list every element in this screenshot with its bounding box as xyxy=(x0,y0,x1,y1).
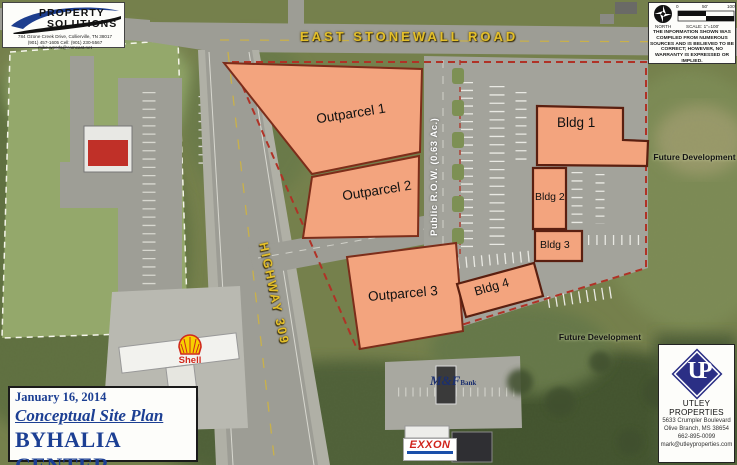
utley-email: mark@utleyproperties.com xyxy=(659,441,734,449)
public-row-label: Public R.O.W. (0.63 Ac.) xyxy=(429,92,444,262)
north-arrow-icon xyxy=(653,4,673,24)
mf-bank-mark: M&FBank xyxy=(430,372,476,390)
utley-phone: 662-895-0099 xyxy=(659,433,734,441)
exxon-label: EXXON xyxy=(404,439,456,451)
utley-properties-box: UP UTLEY PROPERTIES 5633 Crumpler Boulev… xyxy=(658,344,735,463)
shell-station-mark: Shell xyxy=(170,334,210,366)
scale-tick-0: 0 xyxy=(676,4,679,9)
shell-pecten-icon xyxy=(178,334,202,356)
utley-monogram: UP xyxy=(674,358,720,385)
exxon-building xyxy=(452,432,492,462)
utley-diamond-logo: UP xyxy=(674,351,720,397)
north-scale-box: 0 50' 100' NORTH SCALE: 1"=100' THE INFO… xyxy=(648,2,736,64)
site-plan-canvas: EAST STONEWALL ROAD HIGHWAY 309 Public R… xyxy=(0,0,737,465)
north-label: NORTH xyxy=(655,24,671,29)
bldg-1-label: Bldg 1 xyxy=(557,115,595,130)
scale-tick-100: 100' xyxy=(727,4,736,9)
scale-label: SCALE: 1"=100' xyxy=(686,24,719,29)
east-stonewall-road-label: EAST STONEWALL ROAD xyxy=(300,29,518,44)
project-name: BYHALIA CENTER xyxy=(15,427,191,465)
scale-bar xyxy=(677,10,735,24)
mf-logo-label: M&F xyxy=(430,373,460,388)
utley-name: UTLEY PROPERTIES xyxy=(659,399,734,417)
future-development-bottom-label: Future Development xyxy=(550,332,650,342)
exxon-blue-stripe xyxy=(407,451,453,454)
shell-label: Shell xyxy=(170,355,210,366)
bldg-3-label: Bldg 3 xyxy=(540,239,570,251)
mf-bank-label: Bank xyxy=(460,379,476,387)
plan-date: January 16, 2014 xyxy=(15,390,191,405)
utley-address-line2: Olive Branch, MS 38654 xyxy=(659,425,734,433)
property-solutions-logo-box: PROPERTY SOLUTIONS 784 Ozone Creek Drive… xyxy=(2,2,125,48)
property-solutions-address: 784 Ozone Creek Drive, Collierville, TN … xyxy=(6,34,124,40)
plan-type: Conceptual Site Plan xyxy=(15,406,191,426)
property-solutions-contact: (901) 457-1605 Cell: (901) 230-5567 mike… xyxy=(6,40,124,51)
utley-address-line1: 5633 Crumpler Boulevard xyxy=(659,417,734,425)
property-solutions-name-line2: SOLUTIONS xyxy=(47,18,117,30)
bldg-2-label: Bldg 2 xyxy=(535,191,565,203)
title-block: January 16, 2014 Conceptual Site Plan BY… xyxy=(8,386,198,462)
exxon-sign: EXXON xyxy=(403,438,457,461)
scale-tick-50: 50' xyxy=(702,4,708,9)
future-development-right-label: Future Development xyxy=(652,152,737,162)
disclaimer-text: THE INFORMATION SHOWN WAS COMPILED FROM … xyxy=(650,30,734,65)
